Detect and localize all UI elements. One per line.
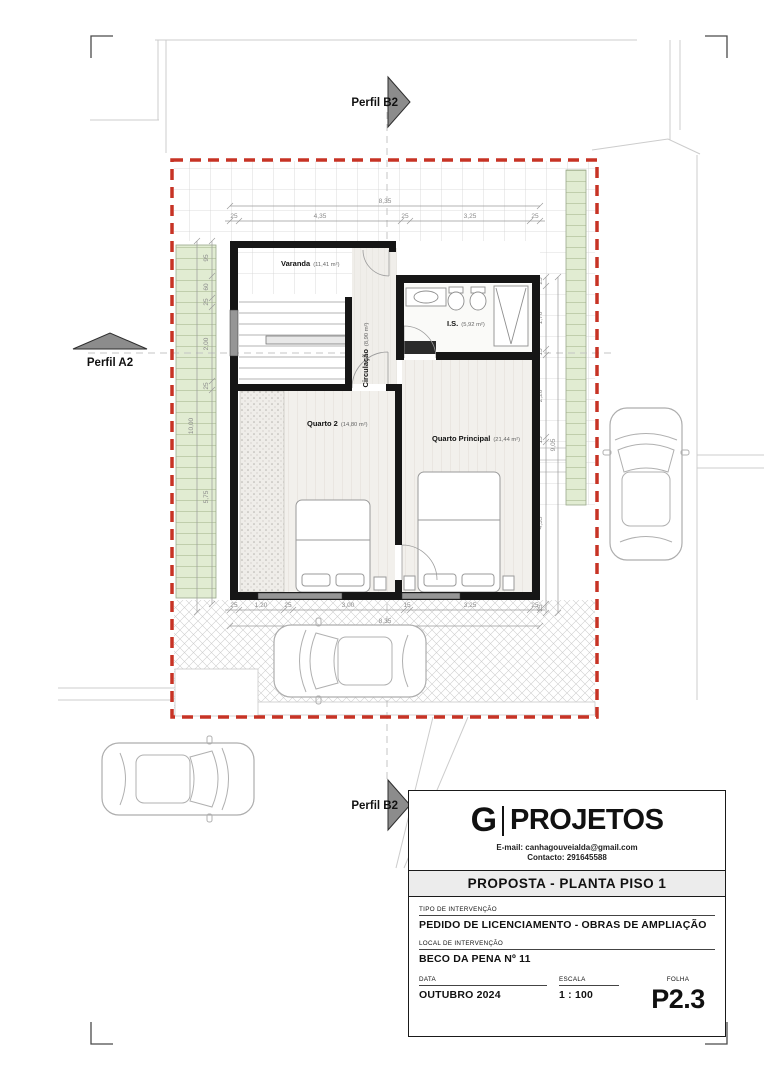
room-area: (14,80 m²) <box>341 422 368 428</box>
dim-left-overall: 10,00 <box>188 417 195 434</box>
room-area: (5,92 m²) <box>461 322 485 328</box>
bidet-bowl <box>470 292 486 310</box>
dim-top-overall: 8,35 <box>379 198 392 205</box>
dim-label: 95 <box>203 254 210 262</box>
room-name: Circulação <box>361 349 370 388</box>
field-rule <box>419 949 715 950</box>
field-rule <box>419 915 715 916</box>
field-folha: FOLHA P2.3 <box>641 976 715 1015</box>
field-rule <box>559 985 619 986</box>
dim-label: 25 <box>531 213 539 220</box>
field-escala: ESCALA 1 : 100 <box>559 976 641 1015</box>
section-marker-b2-bottom: Perfil B2 <box>351 780 410 830</box>
room-name: Quarto Principal <box>432 434 490 443</box>
dim-label: 60 <box>203 283 210 291</box>
car-courtyard <box>274 618 426 704</box>
field-tipo-label: TIPO DE INTERVENÇÃO <box>419 906 715 913</box>
field-data-value: OUTUBRO 2024 <box>419 989 559 1001</box>
field-tipo-value: PEDIDO DE LICENCIAMENTO - OBRAS DE AMPLI… <box>419 919 715 931</box>
logo-name: PROJETOS <box>510 804 663 837</box>
car-parked-right <box>603 408 689 560</box>
room-area: (11,41 m²) <box>313 262 339 268</box>
room-name: I.S. <box>447 319 458 328</box>
logo-divider <box>502 806 504 836</box>
field-data-label: DATA <box>419 976 559 983</box>
dim-label: 25 <box>284 602 292 609</box>
bath-cabinet <box>404 341 436 354</box>
field-local-value: BECO DA PENA Nº 11 <box>419 953 715 965</box>
corner-mark-top-left <box>91 36 113 58</box>
corner-mark-top-right <box>705 36 727 58</box>
room-area: (8,90 m²) <box>364 322 370 346</box>
window <box>258 593 342 599</box>
car-street <box>102 736 254 822</box>
dim-label: 1,20 <box>255 602 268 609</box>
room-name: Quarto 2 <box>307 419 338 428</box>
dim-label: 5,75 <box>203 490 210 503</box>
field-rule <box>419 985 547 986</box>
dim-label: 25 <box>230 213 238 220</box>
company-email: E-mail: canhagouveialda@gmail.com <box>409 843 725 853</box>
section-marker-a2-left: Perfil A2 <box>73 333 147 369</box>
field-local-label: LOCAL DE INTERVENÇÃO <box>419 940 715 947</box>
dim-label: 15 <box>403 602 411 609</box>
dim-label: 25 <box>203 382 210 390</box>
field-folha-label: FOLHA <box>641 976 715 983</box>
dim-label: 4,35 <box>314 213 327 220</box>
dim-label: 25 <box>401 213 409 220</box>
nightstand <box>503 576 514 590</box>
section-label-b2-top: Perfil B2 <box>351 97 398 109</box>
nightstand <box>374 577 386 590</box>
corner-mark-bottom-left <box>91 1022 113 1044</box>
section-label-a2-left: Perfil A2 <box>87 357 133 369</box>
window <box>402 593 460 599</box>
dim-label: 3,00 <box>342 602 355 609</box>
shower-tray <box>494 286 528 346</box>
field-folha-value: P2.3 <box>641 984 715 1015</box>
dim-right-overall: 9,05 <box>550 438 557 451</box>
nightstand <box>404 576 415 590</box>
sheet-title: PROPOSTA - PLANTA PISO 1 <box>409 870 725 897</box>
field-local: LOCAL DE INTERVENÇÃO BECO DA PENA Nº 11 <box>419 940 715 965</box>
window <box>230 310 238 356</box>
field-tipo: TIPO DE INTERVENÇÃO PEDIDO DE LICENCIAME… <box>419 906 715 931</box>
dim-label: 25 <box>537 604 544 612</box>
garden-strip-left <box>176 245 216 598</box>
field-data: DATA OUTUBRO 2024 <box>419 976 559 1015</box>
toilet-bowl <box>448 292 464 310</box>
field-escala-value: 1 : 100 <box>559 989 641 1001</box>
dim-label: 25 <box>230 602 238 609</box>
dim-label: 25 <box>203 298 210 306</box>
garden-strip-right <box>566 170 586 505</box>
staircase <box>239 302 346 379</box>
dim-bottom-overall: 8,35 <box>379 618 392 625</box>
section-marker-b2-top: Perfil B2 <box>351 77 410 127</box>
dim-label: 2,00 <box>203 337 210 350</box>
dim-label: 3,25 <box>464 602 477 609</box>
section-label-b2-bottom: Perfil B2 <box>351 800 398 812</box>
dim-label: 3,25 <box>464 213 477 220</box>
room-area: (21,44 m²) <box>493 437 520 443</box>
title-block: G PROJETOS E-mail: canhagouveialda@gmail… <box>408 790 726 1037</box>
room-name: Varanda <box>281 259 311 268</box>
field-escala-label: ESCALA <box>559 976 641 983</box>
logo-g-icon: G <box>471 801 496 840</box>
company-logo: G PROJETOS <box>409 801 725 840</box>
company-contact: Contacto: 291645588 <box>409 853 725 863</box>
sink-basin <box>414 291 438 303</box>
